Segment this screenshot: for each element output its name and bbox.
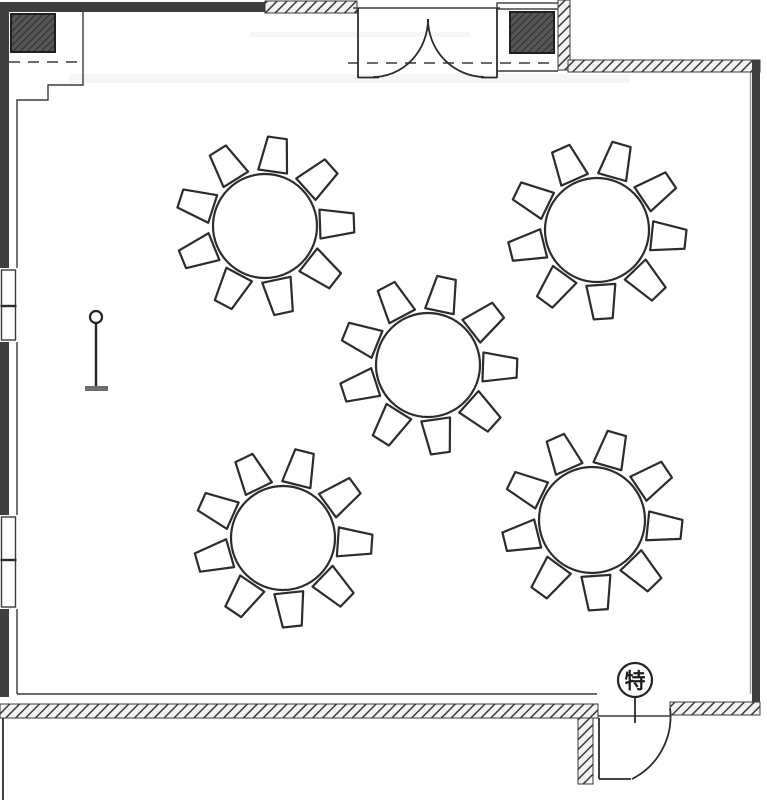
floor-plan-canvas: 特 [0, 0, 767, 800]
window-upper [0, 268, 18, 342]
right-wall [752, 60, 760, 715]
column-top-right [510, 12, 554, 53]
bottom-door-side-stub [578, 718, 593, 784]
table-top [231, 486, 335, 590]
top-wall-hatched [265, 1, 357, 13]
stand-head [90, 311, 102, 323]
top-wall-thin [497, 3, 568, 9]
scan-smudge [250, 32, 470, 37]
bottom-wall-right [670, 702, 760, 715]
table-top [213, 174, 317, 278]
chair [319, 208, 354, 238]
table-top [545, 178, 649, 282]
top-wall-solid [0, 2, 265, 12]
window-lower [0, 515, 18, 609]
column-top-left [11, 14, 55, 52]
top-right-wall-band [568, 60, 760, 72]
scan-smudge [70, 74, 630, 83]
tag-label: 特 [625, 669, 646, 693]
table-top [539, 467, 645, 573]
bottom-wall-left [0, 704, 598, 718]
stand-base [85, 386, 108, 391]
window-frame [2, 517, 16, 607]
table-top [376, 313, 480, 417]
chair [482, 352, 517, 382]
